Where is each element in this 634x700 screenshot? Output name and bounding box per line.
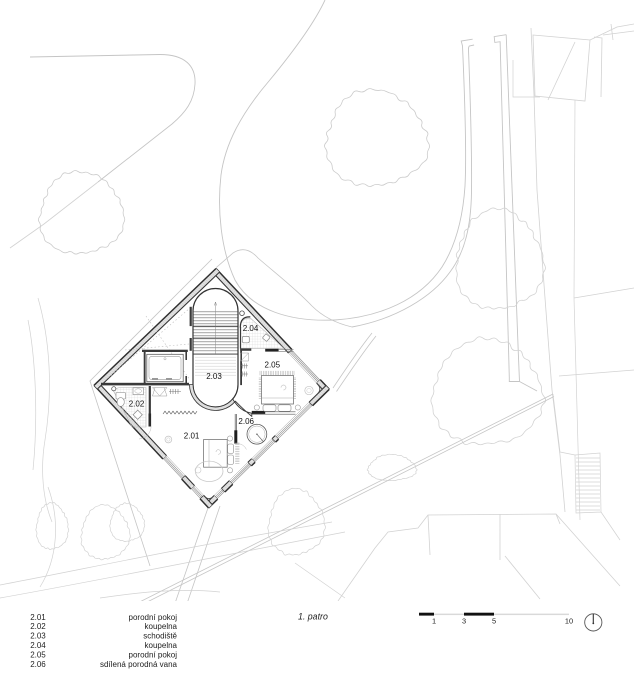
svg-text:koupelna: koupelna xyxy=(145,641,178,650)
svg-text:10: 10 xyxy=(565,616,573,625)
svg-text:2.05: 2.05 xyxy=(30,650,46,659)
svg-text:3: 3 xyxy=(462,616,466,625)
svg-text:schodiště: schodiště xyxy=(143,632,177,641)
svg-text:2.03: 2.03 xyxy=(30,632,46,641)
svg-text:5: 5 xyxy=(492,616,496,625)
svg-text:2.01: 2.01 xyxy=(30,613,46,622)
svg-text:2.04: 2.04 xyxy=(30,641,46,650)
svg-text:2.06: 2.06 xyxy=(30,660,46,669)
svg-text:2.04: 2.04 xyxy=(243,324,259,333)
svg-text:2.05: 2.05 xyxy=(265,360,281,369)
svg-text:koupelna: koupelna xyxy=(145,622,178,631)
svg-text:porodní pokoj: porodní pokoj xyxy=(129,650,178,659)
svg-text:2.01: 2.01 xyxy=(184,431,200,440)
svg-text:1. patro: 1. patro xyxy=(298,611,328,621)
svg-text:2.06: 2.06 xyxy=(238,417,254,426)
svg-text:2.02: 2.02 xyxy=(30,622,46,631)
svg-text:sdílená porodná vana: sdílená porodná vana xyxy=(100,660,178,669)
svg-text:2.02: 2.02 xyxy=(129,399,145,408)
svg-text:porodní pokoj: porodní pokoj xyxy=(129,613,178,622)
svg-text:1: 1 xyxy=(432,616,436,625)
svg-text:2.03: 2.03 xyxy=(206,372,222,381)
